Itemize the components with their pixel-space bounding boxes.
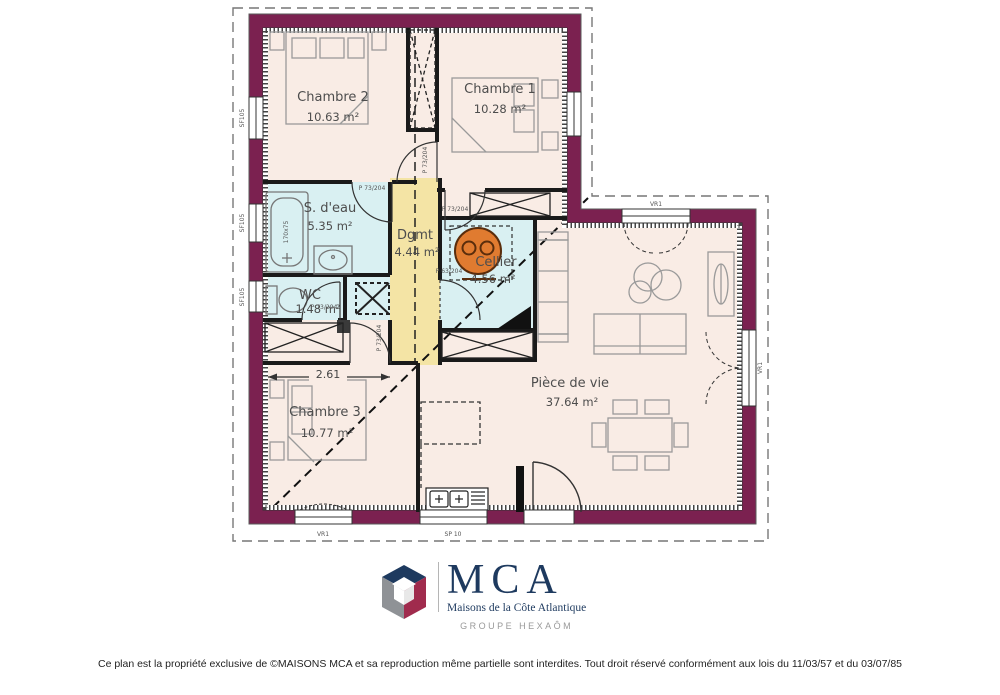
label-cellier: Cellier (475, 255, 517, 270)
entrance-wall-stub (516, 466, 524, 512)
label-piece-de-vie: Pièce de vie (531, 376, 609, 391)
dimension-value: 2.61 (316, 368, 341, 381)
mca-cube-icon (378, 562, 430, 622)
floor-plan-page: 2.61 Chambre 2 10.63 m² Chambre 1 10.28 … (0, 0, 1000, 695)
window-label-left-2: SF105 (239, 213, 246, 232)
window-kitchen-bottom (420, 510, 487, 524)
door-label-ch1: P 73/204 (442, 206, 469, 213)
copyright-notice: Ce plan est la propriété exclusive de ©M… (0, 658, 1000, 670)
area-dgmt: 4.44 m² (394, 245, 439, 259)
label-chambre1: Chambre 1 (464, 82, 536, 97)
door-label-wc: P 73/204 (311, 304, 338, 311)
logo-group-name: GROUPE HEXAÔM (447, 621, 586, 631)
kitchen-sink-icon (426, 488, 488, 510)
bathtub-size-label: 170x75 (283, 221, 290, 244)
label-chambre3: Chambre 3 (289, 405, 361, 420)
window-label-bottom: VR1 (317, 531, 329, 538)
window-left-1 (249, 97, 263, 139)
door-label-ch2: P 73/204 (422, 147, 429, 174)
window-left-2 (249, 204, 263, 242)
label-sdeau: S. d'eau (304, 201, 357, 216)
area-piece-de-vie: 37.64 m² (546, 395, 598, 409)
window-label-kitchen: SP 10 (445, 531, 462, 538)
area-chambre3: 10.77 m² (301, 426, 353, 440)
logo-company-name: Maisons de la Côte Atlantique (447, 602, 586, 614)
logo-divider (438, 562, 439, 612)
window-label-left-1: SF105 (239, 108, 246, 127)
area-chambre1: 10.28 m² (474, 102, 526, 116)
door-label-cellier: P 63/204 (436, 268, 463, 275)
window-chambre1-right (567, 92, 581, 136)
door-label-right: VR1 (757, 362, 764, 374)
label-wc: WC (299, 288, 321, 303)
mca-logo: MCA Maisons de la Côte Atlantique GROUPE… (378, 560, 638, 631)
window-label-left-3: SF105 (239, 287, 246, 306)
area-chambre2: 10.63 m² (307, 110, 359, 124)
door-label-sdeau: P 73/204 (359, 185, 386, 192)
logo-acronym: MCA (447, 560, 586, 600)
label-dgmt: Dgmt (397, 228, 433, 243)
window-left-3 (249, 281, 263, 312)
window-label-top: VR1 (650, 201, 662, 208)
area-cellier: 4.56 m² (470, 272, 515, 286)
area-sdeau: 5.35 m² (307, 219, 352, 233)
entrance-threshold (524, 510, 574, 524)
label-chambre2: Chambre 2 (297, 90, 369, 105)
door-label-ch3: P 73/204 (376, 325, 383, 352)
